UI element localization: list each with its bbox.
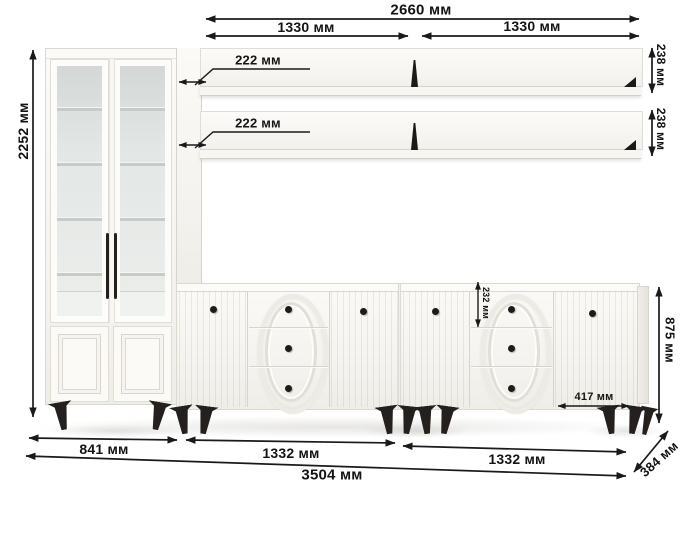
door-handle-left	[106, 233, 109, 299]
sideboard2-door-right	[555, 291, 637, 407]
drawer-knob	[285, 385, 292, 392]
drawer-knob	[508, 385, 515, 392]
cabinet-cornice	[46, 49, 176, 59]
floor-shadow	[585, 424, 665, 438]
drawer-knob	[285, 306, 292, 313]
dim-label-depth: 384 мм	[637, 438, 681, 480]
dim-label-shelf-left: 1330 мм	[277, 19, 334, 35]
glass-door-right	[113, 59, 172, 323]
dim-line-1332-left	[186, 440, 395, 443]
glass-pane	[120, 66, 165, 316]
dim-label-shelf-right: 1330 мм	[503, 18, 560, 34]
dim-label-cabinet-width: 841 мм	[79, 441, 128, 457]
dim-label-shelf-height-bottom: 238 мм	[654, 108, 668, 150]
panel-door-left	[50, 326, 109, 402]
dim-label-sideboard-height: 875 мм	[663, 317, 678, 363]
floor-shadow	[360, 424, 470, 438]
dim-label-cabinet-height: 2252 мм	[15, 102, 31, 159]
drawer-knob	[508, 306, 515, 313]
sideboard-side-face	[637, 286, 649, 404]
glass-pane	[57, 66, 102, 316]
dim-label-sideboard-left: 1332 мм	[262, 445, 319, 461]
door-knob	[360, 308, 367, 315]
side-panel	[176, 48, 202, 285]
door-handle-right	[114, 233, 117, 299]
dim-label-door-width: 417 мм	[575, 391, 614, 403]
dim-label-overall-width: 2660 мм	[390, 2, 451, 19]
dim-label-shelf-height-top: 238 мм	[654, 44, 668, 86]
frosted-pane	[57, 291, 102, 316]
dim-label-shelf-depth-bottom: 222 мм	[235, 116, 281, 131]
door-knob	[432, 308, 439, 315]
drawer-knob	[285, 345, 292, 352]
furniture-dimension-diagram: 2660 мм 1330 мм 1330 мм 2252 мм 222 мм 2…	[0, 0, 700, 560]
sideboard1-drawers	[249, 291, 328, 407]
door-knob	[210, 306, 217, 313]
dim-line-841	[29, 438, 177, 440]
sideboard-unit	[176, 283, 640, 410]
dim-label-drawer-height: 232 мм	[481, 287, 491, 319]
door-knob	[589, 310, 596, 317]
frosted-pane	[120, 291, 165, 316]
dim-label-shelf-depth-top: 222 мм	[235, 53, 281, 68]
sideboard-split	[398, 284, 401, 409]
dim-label-total-width: 3504 мм	[301, 467, 362, 484]
drawer-knob	[508, 345, 515, 352]
tall-display-cabinet	[45, 48, 177, 405]
glass-door-left	[50, 59, 109, 323]
panel-door-right	[113, 326, 172, 402]
dim-label-sideboard-right: 1332 мм	[488, 451, 545, 467]
